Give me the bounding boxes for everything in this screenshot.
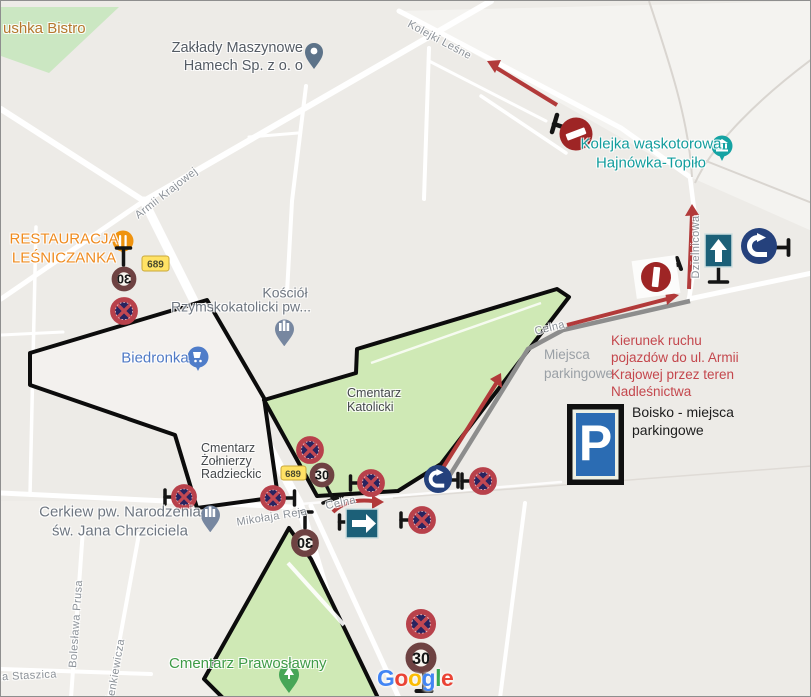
poi-label-line: Hajnówka-Topiło [581, 154, 722, 173]
svg-text:689: 689 [285, 469, 301, 480]
poi-label-cmentarz-katolicki[interactable]: Cmentarz Katolicki [347, 386, 401, 414]
speed-limit-30-sign-mirrored: 30 [294, 532, 316, 554]
annotation-line: Boisko - miejsca [632, 403, 734, 421]
svg-text:30: 30 [315, 468, 329, 483]
annotation-line: Miejsca [544, 345, 613, 364]
road-badge-689: 689 [281, 466, 306, 480]
poi-label-kosciol-line2[interactable]: Rzymskokatolicki pw... [171, 298, 311, 316]
poi-label-line: Kolejka wąskotorowa [581, 135, 722, 154]
poi-label-bistro[interactable]: ushka Bistro [3, 20, 86, 39]
no-stopping-sign-icon [472, 470, 495, 493]
right-arrow-sign-icon [346, 509, 378, 538]
speed-limit-30-sign-mirrored: 30 [114, 269, 133, 288]
poi-label-line: Katolicki [347, 400, 401, 414]
svg-text:689: 689 [147, 260, 164, 271]
poi-label-line: LEŚNICZANKA [10, 249, 119, 268]
annotation-miejsca-parkingowe: Miejsca parkingowe [544, 345, 613, 383]
poi-label-zaklady[interactable]: Zakłady Maszynowe Hamech Sp. z o. o [141, 39, 303, 75]
poi-label-line: Hamech Sp. z o. o [141, 57, 303, 75]
google-letter: e [441, 665, 453, 691]
svg-text:30: 30 [297, 536, 313, 552]
poi-label-biedronka[interactable]: Biedronka [121, 350, 189, 369]
street-label-dzielnicowa: Dzielnicowa [690, 215, 704, 278]
no-stopping-sign-icon [409, 612, 433, 636]
no-stopping-sign-icon [262, 487, 283, 508]
no-stopping-sign-icon [299, 439, 322, 462]
parking-sign-icon: P [567, 404, 624, 485]
roundabout-sign-icon [424, 465, 452, 493]
poi-label-cmentarz-zolnierzy[interactable]: Cmentarz Żołnierzy Radzieckic [201, 442, 261, 481]
poi-label-line: Cmentarz [347, 386, 401, 400]
speed-limit-30-sign: 30 [312, 465, 331, 484]
annotation-line: Krajowej przez teren [611, 366, 739, 383]
road-badge-689: 689 [142, 256, 169, 271]
poi-label-cerkiew[interactable]: Cerkiew pw. Narodzenia św. Jana Chrzcici… [39, 503, 201, 541]
svg-text:30: 30 [117, 272, 131, 287]
google-letter: g [422, 665, 436, 691]
poi-label-line: Zakłady Maszynowe [141, 39, 303, 57]
annotation-line: parkingowe [544, 364, 613, 383]
poi-label-line: Cerkiew pw. Narodzenia [39, 503, 201, 522]
one-way-sign-icon [705, 234, 732, 267]
poi-label-line: św. Jana Chrzciciela [39, 522, 201, 541]
annotation-line: Nadleśnictwa [611, 383, 739, 400]
poi-label-kolejka[interactable]: Kolejka wąskotorowa Hajnówka-Topiło [581, 135, 722, 173]
no-entry-sign-icon [632, 255, 681, 299]
no-stopping-sign-icon [360, 472, 383, 495]
svg-text:P: P [579, 415, 612, 471]
roundabout-sign-icon [741, 228, 777, 264]
google-letter: G [377, 665, 394, 691]
poi-label-line: RESTAURACJA [10, 230, 119, 249]
no-stopping-sign-icon [411, 509, 434, 532]
annotation-line: pojazdów do ul. Armii [611, 349, 739, 366]
google-letter: o [408, 665, 422, 691]
annotation-kierunek-ruchu: Kierunek ruchu pojazdów do ul. Armii Kra… [611, 332, 739, 400]
google-letter: o [394, 665, 408, 691]
google-logo[interactable]: Google [377, 664, 453, 693]
poi-label-cmentarz-prawoslawny[interactable]: Cmentarz Prawosławny [169, 655, 327, 674]
poi-label-line: Radzieckic [201, 468, 261, 481]
annotation-boisko: Boisko - miejsca parkingowe [632, 403, 734, 439]
annotation-line: Kierunek ruchu [611, 332, 739, 349]
annotation-line: parkingowe [632, 421, 734, 439]
poi-label-restauracja[interactable]: RESTAURACJA LEŚNICZANKA [10, 230, 119, 268]
map-canvas[interactable]: 689 689 [0, 0, 811, 697]
no-stopping-sign-icon [113, 300, 136, 323]
